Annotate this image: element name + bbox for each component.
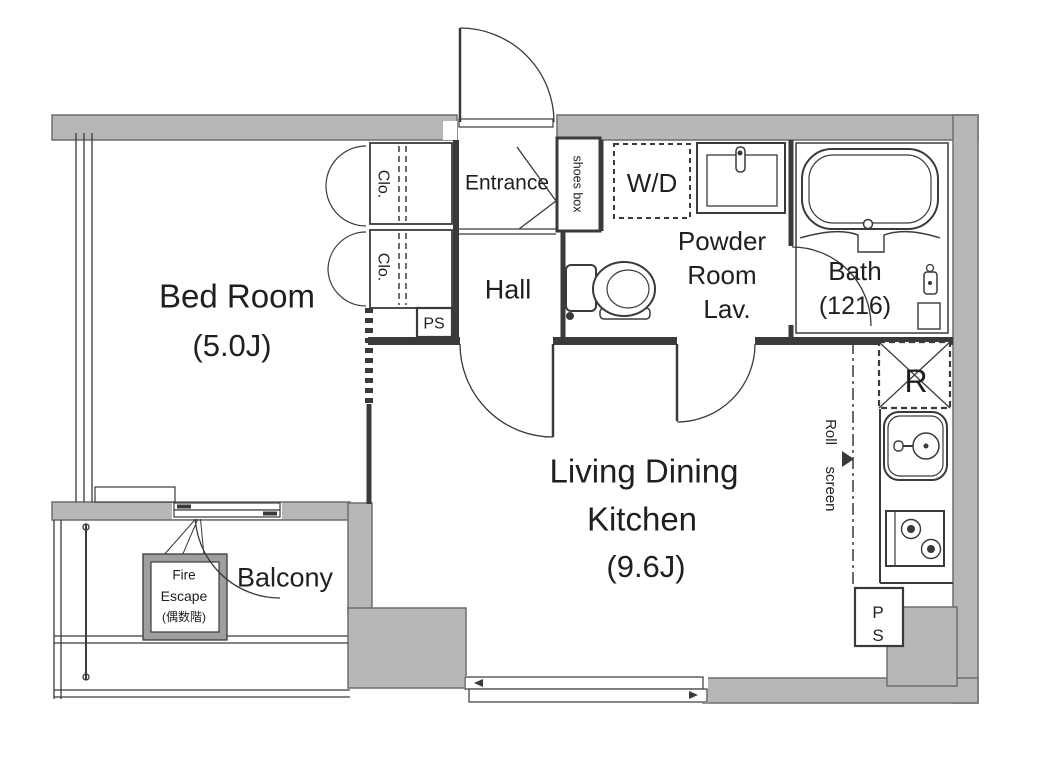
refrigerator-label: R (904, 363, 927, 399)
entrance-label: Entrance (465, 171, 549, 194)
floor-plan: Bed Room (5.0J) Living Dining Kitchen (9… (0, 0, 1039, 772)
stove (886, 511, 944, 566)
ps-kitchen-label-p: P (872, 603, 883, 622)
roll-screen-arrow-icon (842, 451, 854, 467)
wall-top-right (557, 115, 978, 140)
bath-drain-unit (918, 303, 940, 329)
hall-label: Hall (485, 274, 532, 304)
ldk-label-2: Kitchen (587, 501, 697, 538)
wall-balcony-ldk (348, 503, 372, 613)
powder-room-door (677, 344, 755, 422)
balcony-label: Balcony (237, 562, 334, 592)
bedroom-side-window (76, 133, 92, 502)
powder-label-3: Lav. (703, 294, 750, 324)
fire-escape-label-3: (偶数階) (162, 609, 206, 624)
wall-top-left (52, 115, 457, 140)
bedroom-balcony-window (172, 503, 282, 519)
fire-escape-label-1: Fire (172, 568, 195, 583)
wd-label: W/D (627, 168, 678, 198)
bath-size: (1216) (819, 292, 891, 320)
ps-hall-label: PS (423, 316, 444, 333)
bedroom-label: Bed Room (159, 278, 315, 315)
bedroom-size: (5.0J) (192, 328, 271, 363)
ps-kitchen-label-s: S (872, 626, 883, 645)
bath-label: Bath (828, 256, 882, 286)
roll-screen-label-1: Roll (822, 419, 839, 445)
balcony-drainpipe (83, 524, 89, 680)
ldk-label-1: Living Dining (550, 453, 739, 490)
lavatory-sink (697, 143, 785, 213)
entrance-door (459, 28, 554, 127)
closet1-label: Clo. (374, 170, 391, 198)
floor-plan-drawing: Bed Room (5.0J) Living Dining Kitchen (9… (0, 0, 1039, 772)
hall-door (460, 344, 553, 437)
bathtub (802, 149, 938, 229)
ldk-balcony-window (464, 676, 708, 703)
toilet (566, 262, 655, 320)
shoes-box-label: shoes box (571, 156, 585, 214)
roll-screen-label-2: screen (822, 466, 839, 511)
powder-label-2: Room (687, 260, 756, 290)
closet2-label: Clo. (374, 253, 391, 281)
wall-ldk-corner-block (348, 608, 466, 688)
fire-escape-label-2: Escape (161, 588, 208, 604)
entrance-jamb-left (443, 121, 457, 140)
kitchen-sink (884, 412, 947, 480)
window-pocket (95, 487, 175, 502)
powder-label-1: Powder (678, 226, 766, 256)
bathtub-apron (800, 232, 940, 252)
ldk-size: (9.6J) (606, 549, 685, 584)
